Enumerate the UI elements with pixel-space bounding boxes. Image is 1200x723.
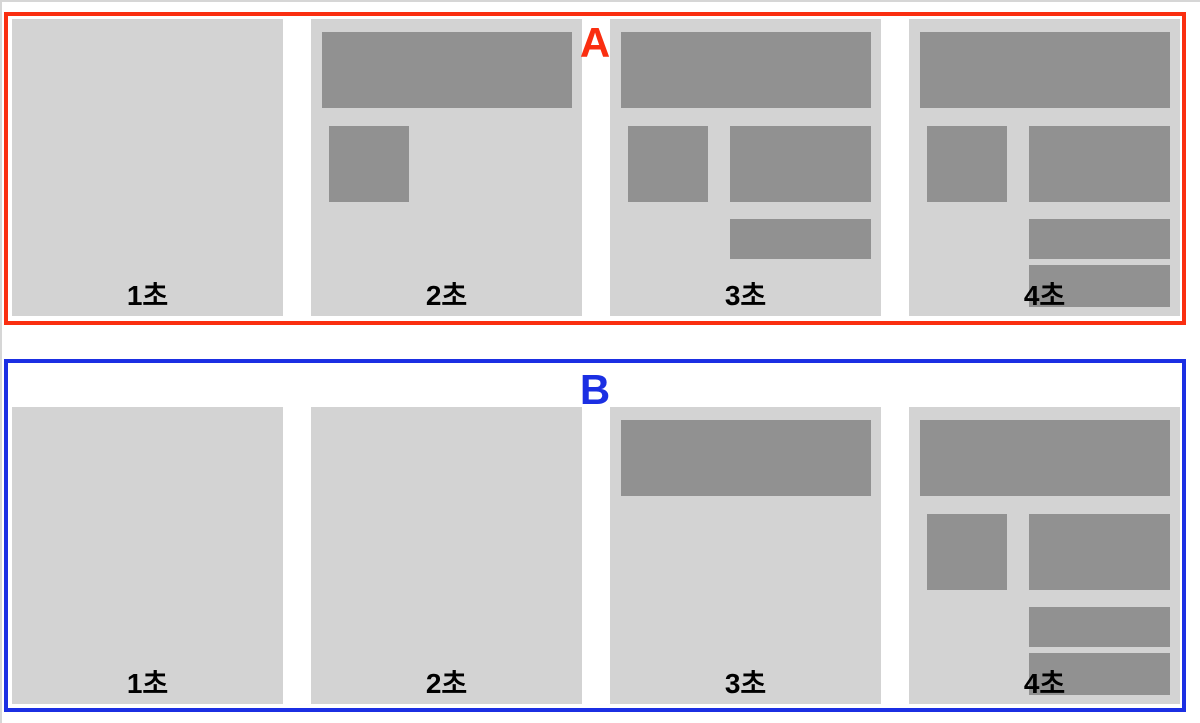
text-bar-1-block — [730, 219, 871, 259]
group-a-frames-row: 1초 2초 3초 4초 — [12, 19, 1180, 316]
image-block — [927, 126, 1007, 202]
content-block — [730, 126, 871, 202]
header-block — [920, 420, 1170, 496]
content-block — [1029, 514, 1170, 590]
image-block — [329, 126, 409, 202]
group-b-box: B 1초 2초 3초 4초 — [4, 359, 1186, 712]
page-edge-left — [0, 0, 2, 723]
header-block — [621, 420, 871, 496]
time-label-b-4s: 4초 — [909, 670, 1180, 698]
time-label-a-4s: 4초 — [909, 282, 1180, 310]
time-label-b-3s: 3초 — [610, 670, 881, 698]
header-block — [920, 32, 1170, 108]
time-label-a-1s: 1초 — [12, 282, 283, 310]
time-label-b-2s: 2초 — [311, 670, 582, 698]
frame-a-4s: 4초 — [909, 19, 1180, 316]
image-block — [927, 514, 1007, 590]
content-block — [1029, 126, 1170, 202]
frame-b-4s: 4초 — [909, 407, 1180, 704]
group-a-box: A 1초 2초 3초 4초 — [4, 12, 1186, 325]
text-bar-1-block — [1029, 607, 1170, 647]
time-label-a-2s: 2초 — [311, 282, 582, 310]
frame-a-2s: 2초 — [311, 19, 582, 316]
text-bar-1-block — [1029, 219, 1170, 259]
group-b-label: B — [8, 369, 1182, 411]
header-block — [322, 32, 572, 108]
frame-a-3s: 3초 — [610, 19, 881, 316]
time-label-a-3s: 3초 — [610, 282, 881, 310]
page-edge-top — [0, 0, 1200, 2]
image-block — [628, 126, 708, 202]
group-b-frames-row: 1초 2초 3초 4초 — [12, 407, 1180, 704]
time-label-b-1s: 1초 — [12, 670, 283, 698]
diagram-page: A 1초 2초 3초 4초 B 1초 2초 3초 — [0, 0, 1200, 723]
header-block — [621, 32, 871, 108]
frame-b-1s: 1초 — [12, 407, 283, 704]
frame-b-3s: 3초 — [610, 407, 881, 704]
frame-b-2s: 2초 — [311, 407, 582, 704]
frame-a-1s: 1초 — [12, 19, 283, 316]
